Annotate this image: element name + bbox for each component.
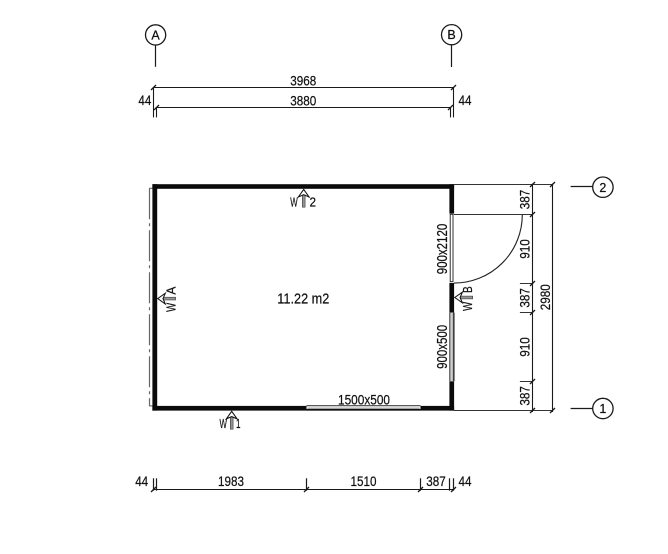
svg-text:2980: 2980 — [537, 284, 553, 310]
svg-text:1500x500: 1500x500 — [338, 391, 390, 407]
svg-text:900x2120: 900x2120 — [435, 224, 451, 275]
svg-text:W: W — [460, 301, 475, 311]
svg-text:44: 44 — [135, 473, 148, 489]
svg-text:900x500: 900x500 — [435, 325, 451, 369]
svg-text:A: A — [151, 28, 160, 42]
svg-text:2: 2 — [599, 181, 606, 195]
svg-text:3968: 3968 — [290, 72, 316, 88]
svg-text:44: 44 — [459, 473, 472, 489]
svg-text:387: 387 — [517, 386, 533, 406]
svg-text:2: 2 — [310, 195, 317, 210]
svg-text:387: 387 — [517, 190, 533, 210]
svg-text:1510: 1510 — [351, 473, 377, 489]
svg-text:44: 44 — [138, 92, 151, 108]
svg-text:910: 910 — [517, 337, 533, 357]
svg-text:1: 1 — [599, 402, 606, 416]
svg-text:3880: 3880 — [290, 92, 316, 108]
svg-text:44: 44 — [459, 92, 472, 108]
svg-text:B: B — [447, 28, 455, 42]
svg-text:1983: 1983 — [218, 473, 244, 489]
svg-text:11.22 m2: 11.22 m2 — [277, 290, 329, 307]
svg-text:W: W — [290, 194, 298, 209]
svg-text:387: 387 — [517, 288, 533, 308]
svg-text:910: 910 — [517, 239, 533, 259]
svg-text:W: W — [163, 302, 178, 312]
svg-text:1: 1 — [236, 416, 241, 431]
svg-text:387: 387 — [426, 473, 446, 489]
